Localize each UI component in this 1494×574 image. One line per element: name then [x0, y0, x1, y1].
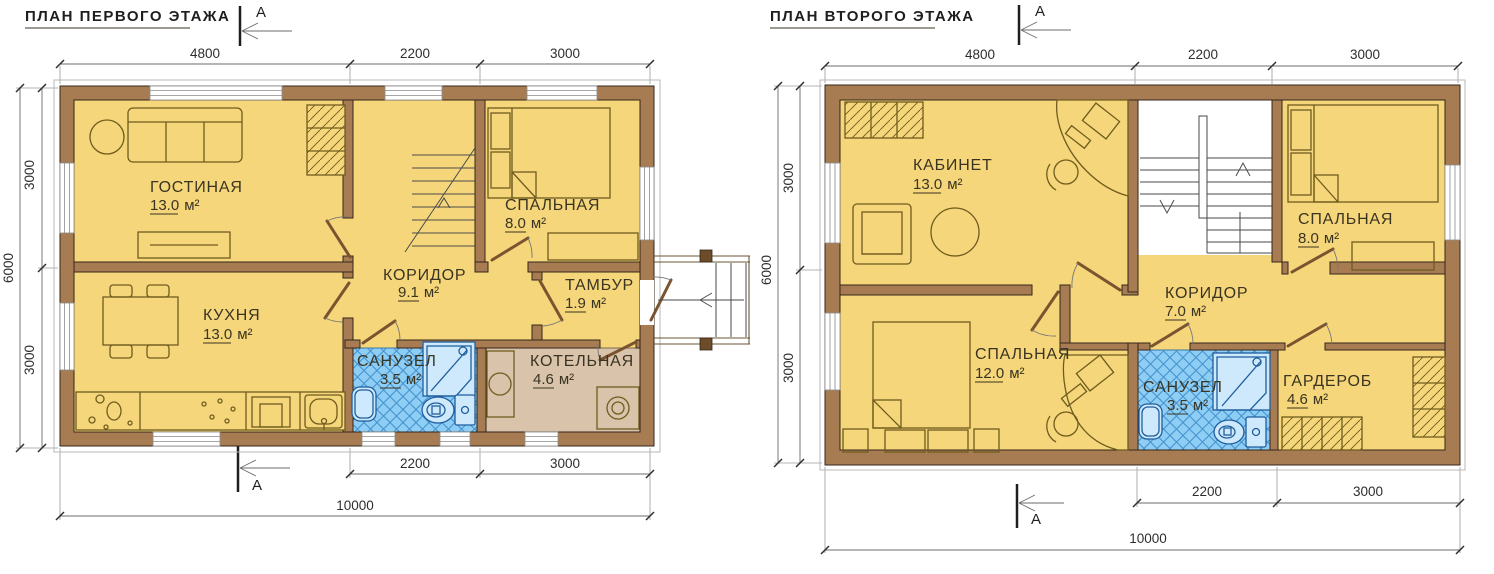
dim-bottom-2: 3000 [1353, 484, 1383, 499]
room-area-bathroom: 3.5м² [1167, 397, 1208, 414]
building-first: ГОСТИНАЯ 13.0м² СПАЛЬНАЯ 8.0м² КОРИДОР 9… [54, 80, 750, 452]
dimensions-top-second: 4800 2200 3000 [821, 47, 1462, 84]
room-area-kitchen: 13.0м² [203, 326, 253, 343]
room-name-bathroom: САНУЗЕЛ [1143, 379, 1223, 396]
room-area-wardrobe: 4.6м² [1287, 391, 1328, 408]
room-name-kitchen: КУХНЯ [203, 307, 260, 324]
dim-bottom-1: 2200 [400, 456, 430, 471]
dim-left-2: 3000 [781, 353, 796, 383]
clothes-rack [1413, 357, 1445, 437]
plan-title: ПЛАН ПЕРВОГО ЭТАЖА [25, 8, 230, 25]
room-area-corridor: 7.0м² [1165, 303, 1206, 320]
wardrobe-cabinet [845, 102, 923, 138]
shelf-unit [307, 105, 345, 175]
room-area-bedroom-large: 12.0м² [975, 365, 1025, 382]
dim-top-3: 3000 [1350, 47, 1380, 62]
dimensions-top-first: 4800 2200 3000 [56, 46, 654, 84]
dim-top-1: 4800 [190, 46, 220, 61]
porch-post [700, 338, 712, 350]
window [60, 163, 74, 233]
window [525, 432, 558, 446]
window [440, 432, 470, 446]
floor-plans-svg: ПЛАН ПЕРВОГО ЭТАЖА А 4800 2200 3000 3000… [0, 0, 1494, 574]
second-floor-plan: ПЛАН ВТОРОГО ЭТАЖА А 4800 2200 3000 3000… [759, 3, 1465, 554]
plan-title: ПЛАН ВТОРОГО ЭТАЖА [770, 8, 975, 25]
window [150, 86, 282, 100]
section-marker-top-second: А [1019, 3, 1071, 45]
dimensions-bottom-first: 2200 3000 10000 А [56, 444, 654, 520]
section-letter: А [1031, 511, 1041, 528]
dim-top-3: 3000 [550, 46, 580, 61]
room-area-bathroom: 3.5м² [380, 371, 421, 388]
room-name-bedroom-small: СПАЛЬНАЯ [1298, 211, 1393, 228]
stair-stringer [1199, 116, 1207, 218]
dim-top-2: 2200 [1188, 47, 1218, 62]
section-marker-top-first: А [240, 4, 292, 46]
window [640, 167, 654, 240]
dim-left-2: 3000 [22, 345, 37, 375]
section-letter: А [1035, 3, 1045, 20]
room-area-living: 13.0м² [150, 197, 200, 214]
dimensions-bottom-second: 2200 3000 10000 А [821, 467, 1464, 554]
room-name-boiler: КОТЕЛЬНАЯ [530, 353, 634, 370]
first-floor-plan: ПЛАН ПЕРВОГО ЭТАЖА А 4800 2200 3000 3000… [1, 4, 750, 520]
dim-left-total: 6000 [759, 255, 774, 285]
dimensions-left-first: 3000 3000 6000 [1, 84, 58, 452]
first-floor-title: ПЛАН ПЕРВОГО ЭТАЖА [25, 8, 230, 28]
window [825, 313, 840, 390]
dim-left-1: 3000 [22, 160, 37, 190]
porch-post [700, 250, 712, 262]
room-name-bedroom-large: СПАЛЬНАЯ [975, 346, 1070, 363]
dim-left-total: 6000 [1, 253, 16, 283]
room-name-corridor: КОРИДОР [383, 267, 466, 284]
window [825, 163, 840, 243]
window [60, 303, 74, 370]
dim-total: 10000 [1129, 531, 1167, 546]
window [362, 432, 395, 446]
room-name-tambour: ТАМБУР [565, 277, 634, 294]
second-floor-title: ПЛАН ВТОРОГО ЭТАЖА [770, 8, 975, 28]
room-area-bedroom: 8.0м² [505, 215, 546, 232]
entry-porch [654, 250, 750, 350]
dim-left-1: 3000 [781, 163, 796, 193]
room-name-wardrobe: ГАРДЕРОБ [1283, 373, 1372, 390]
dim-bottom-1: 2200 [1192, 484, 1222, 499]
room-name-bedroom: СПАЛЬНАЯ [505, 197, 600, 214]
section-letter: А [252, 477, 262, 494]
room-area-office: 13.0м² [913, 176, 963, 193]
room-area-bedroom-small: 8.0м² [1298, 230, 1339, 247]
dim-top-1: 4800 [965, 47, 995, 62]
room-name-office: КАБИНЕТ [913, 157, 993, 174]
wash-basin [352, 387, 376, 421]
room-name-living: ГОСТИНАЯ [150, 179, 243, 196]
building-second: КАБИНЕТ 13.0м² СПАЛЬНАЯ 8.0м² КОРИДОР 7.… [820, 80, 1465, 470]
dim-bottom-2: 3000 [550, 456, 580, 471]
bed [1288, 105, 1438, 202]
wash-basin [1139, 404, 1162, 439]
dim-top-2: 2200 [400, 46, 430, 61]
section-letter: А [256, 4, 266, 21]
room-name-bathroom: САНУЗЕЛ [357, 353, 437, 370]
room-area-boiler: 4.6м² [533, 371, 574, 388]
dimensions-left-second: 3000 3000 6000 [759, 82, 822, 467]
dim-total: 10000 [336, 498, 374, 513]
clothes-rack [1282, 417, 1362, 450]
window [385, 86, 442, 100]
window [1445, 165, 1460, 240]
room-area-corridor: 9.1м² [398, 284, 439, 301]
room-name-corridor: КОРИДОР [1165, 285, 1248, 302]
bed [488, 108, 610, 198]
sofa [128, 108, 242, 162]
section-marker-bottom-second: А [1017, 484, 1064, 528]
room-area-tambour: 1.9м² [565, 295, 606, 312]
window [153, 432, 220, 446]
window [527, 86, 597, 100]
toilet [422, 395, 475, 425]
floor-plan-drawing: ПЛАН ПЕРВОГО ЭТАЖА А 4800 2200 3000 3000… [0, 0, 1494, 574]
